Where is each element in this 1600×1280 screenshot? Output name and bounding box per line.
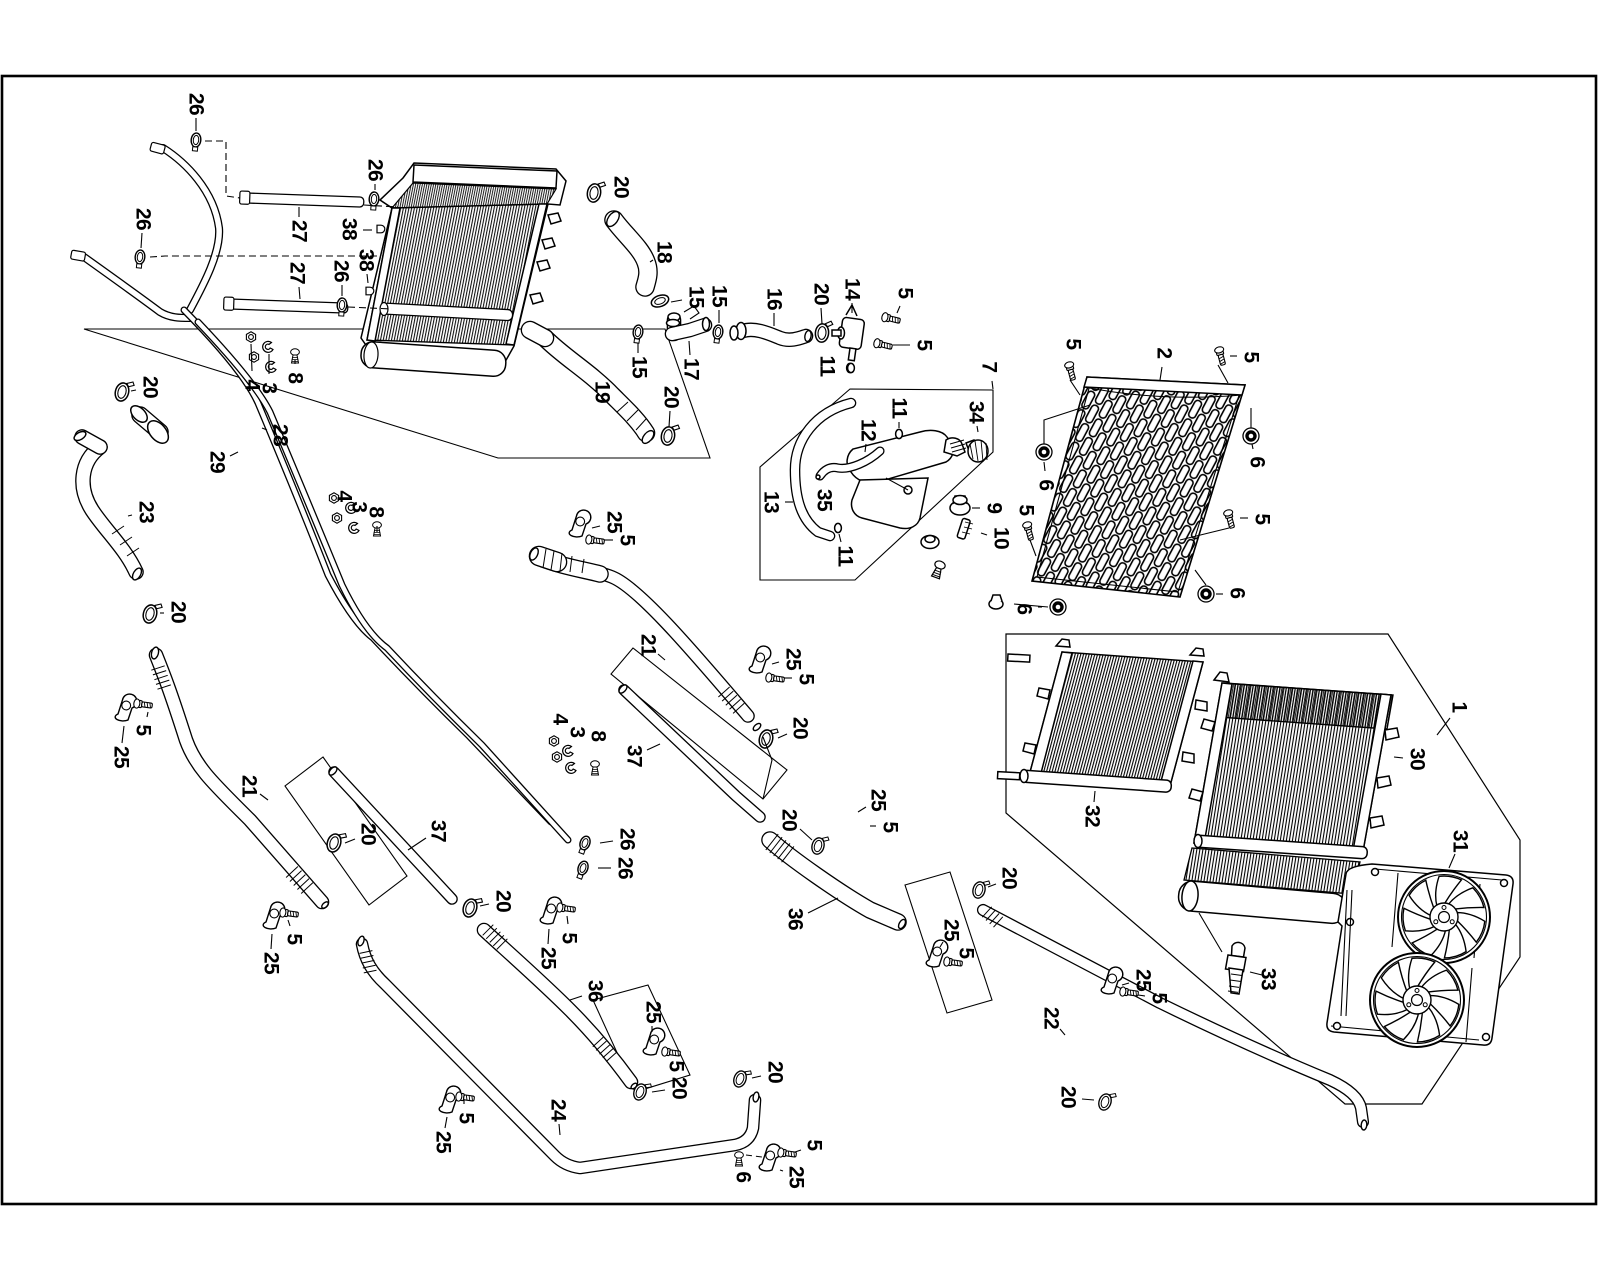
svg-text:18: 18	[653, 241, 676, 264]
svg-text:9: 9	[983, 502, 1006, 513]
svg-text:25: 25	[1132, 969, 1155, 992]
svg-text:3: 3	[258, 382, 281, 393]
svg-text:20: 20	[167, 601, 190, 623]
svg-text:1: 1	[1448, 701, 1471, 713]
svg-text:5: 5	[795, 673, 818, 685]
svg-text:5: 5	[1251, 513, 1274, 525]
svg-text:16: 16	[763, 288, 786, 310]
svg-text:25: 25	[432, 1131, 455, 1154]
svg-text:33: 33	[1257, 968, 1280, 990]
svg-text:25: 25	[603, 511, 626, 534]
svg-text:20: 20	[998, 867, 1021, 889]
svg-text:19: 19	[591, 381, 614, 403]
svg-text:5: 5	[1015, 504, 1038, 516]
svg-text:26: 26	[185, 93, 208, 115]
svg-text:6: 6	[1013, 603, 1036, 614]
svg-text:4: 4	[549, 713, 572, 725]
svg-text:32: 32	[1081, 805, 1104, 827]
svg-text:20: 20	[139, 376, 162, 398]
svg-text:5: 5	[803, 1139, 826, 1151]
svg-text:15: 15	[708, 285, 731, 308]
svg-text:6: 6	[1226, 587, 1249, 598]
svg-text:38: 38	[355, 249, 378, 272]
svg-text:36: 36	[784, 908, 807, 930]
svg-text:20: 20	[610, 176, 633, 198]
svg-text:22: 22	[1040, 1007, 1063, 1029]
svg-text:37: 37	[623, 745, 646, 767]
svg-text:20: 20	[789, 717, 812, 739]
svg-text:20: 20	[764, 1061, 787, 1083]
svg-text:24: 24	[547, 1099, 570, 1122]
svg-text:25: 25	[642, 1001, 665, 1024]
svg-text:31: 31	[1449, 830, 1472, 853]
svg-text:21: 21	[238, 775, 261, 798]
svg-text:27: 27	[286, 262, 309, 284]
svg-text:28: 28	[269, 424, 292, 447]
svg-text:5: 5	[455, 1112, 478, 1124]
svg-text:25: 25	[537, 947, 560, 970]
svg-text:2: 2	[1153, 347, 1176, 358]
svg-text:26: 26	[132, 208, 155, 230]
svg-text:20: 20	[357, 823, 380, 845]
svg-text:6: 6	[1035, 479, 1058, 490]
svg-text:8: 8	[284, 372, 307, 384]
svg-text:5: 5	[558, 932, 581, 944]
svg-text:5: 5	[616, 534, 639, 546]
svg-text:7: 7	[978, 361, 1001, 372]
svg-text:20: 20	[668, 1077, 691, 1099]
svg-text:25: 25	[867, 789, 890, 812]
svg-text:27: 27	[288, 220, 311, 242]
svg-text:11: 11	[888, 397, 911, 419]
svg-text:13: 13	[760, 491, 783, 513]
svg-text:25: 25	[782, 648, 805, 671]
svg-text:5: 5	[894, 287, 917, 299]
svg-text:20: 20	[492, 890, 515, 912]
svg-text:5: 5	[283, 933, 306, 945]
svg-text:35: 35	[813, 489, 836, 512]
svg-text:5: 5	[879, 821, 902, 833]
svg-text:29: 29	[206, 451, 229, 473]
svg-text:5: 5	[665, 1060, 688, 1072]
svg-text:34: 34	[965, 401, 988, 424]
svg-text:8: 8	[365, 506, 388, 518]
svg-text:6: 6	[732, 1171, 755, 1182]
svg-text:20: 20	[778, 809, 801, 831]
svg-text:38: 38	[338, 218, 361, 241]
svg-text:10: 10	[990, 527, 1013, 549]
svg-text:15: 15	[628, 356, 651, 379]
svg-text:23: 23	[135, 501, 158, 523]
svg-text:6: 6	[1246, 456, 1269, 467]
svg-text:26: 26	[614, 857, 637, 879]
svg-text:15: 15	[685, 286, 708, 309]
svg-text:36: 36	[584, 980, 607, 1002]
svg-text:5: 5	[955, 947, 978, 959]
svg-text:20: 20	[1057, 1086, 1080, 1108]
svg-text:20: 20	[660, 386, 683, 408]
svg-text:5: 5	[913, 339, 936, 351]
svg-text:25: 25	[940, 919, 963, 942]
svg-text:21: 21	[637, 634, 660, 657]
svg-text:25: 25	[260, 952, 283, 975]
svg-text:5: 5	[132, 724, 155, 736]
svg-text:5: 5	[1148, 992, 1171, 1004]
svg-text:30: 30	[1406, 748, 1429, 770]
svg-text:26: 26	[330, 260, 353, 282]
svg-text:11: 11	[834, 545, 857, 567]
svg-text:12: 12	[857, 419, 880, 441]
svg-text:5: 5	[1240, 351, 1263, 363]
svg-text:11: 11	[816, 355, 839, 377]
svg-text:26: 26	[364, 159, 387, 181]
svg-text:37: 37	[427, 820, 450, 842]
svg-text:5: 5	[1062, 338, 1085, 350]
svg-text:26: 26	[616, 828, 639, 850]
svg-text:25: 25	[110, 746, 133, 769]
svg-text:17: 17	[680, 358, 703, 380]
svg-text:25: 25	[785, 1166, 808, 1189]
svg-text:8: 8	[587, 730, 610, 742]
svg-text:20: 20	[810, 283, 833, 305]
svg-text:3: 3	[566, 726, 589, 737]
svg-text:14: 14	[841, 278, 864, 301]
